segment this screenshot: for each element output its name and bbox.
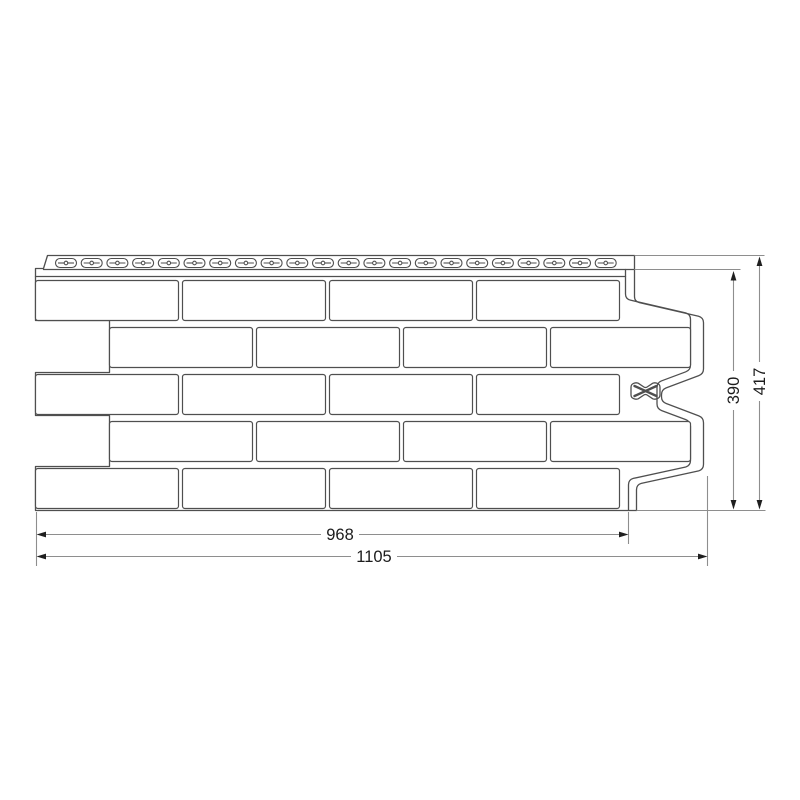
nail-hole (107, 259, 128, 268)
nail-hole (133, 259, 154, 268)
brick (183, 469, 326, 509)
nail-hole (81, 259, 102, 268)
brick (36, 281, 179, 321)
nail-hole (261, 259, 282, 268)
nail-hole (544, 259, 565, 268)
arrowhead (37, 532, 47, 538)
nail-hole (313, 259, 334, 268)
brick (36, 375, 179, 415)
brick (551, 328, 691, 368)
nail-hole (287, 259, 308, 268)
brick (330, 375, 473, 415)
brick (110, 328, 253, 368)
nail-hole (518, 259, 539, 268)
nail-hole (158, 259, 179, 268)
nail-hole (184, 259, 205, 268)
brick (477, 281, 620, 321)
brick (551, 422, 691, 462)
facade-panel-technical-drawing: 968 1105 390 417 (0, 0, 800, 800)
brick-pattern (36, 281, 691, 509)
arrowhead (731, 271, 737, 281)
dim-label-overall-height: 417 (751, 368, 769, 396)
brick (477, 375, 620, 415)
nail-hole (467, 259, 488, 268)
brick (257, 328, 400, 368)
dim-label-face-height: 390 (725, 377, 743, 405)
arrowhead (757, 257, 763, 267)
arrowhead (731, 500, 737, 510)
brick (477, 469, 620, 509)
nail-hole (364, 259, 385, 268)
brick (183, 375, 326, 415)
nail-hole (570, 259, 591, 268)
nail-hole (441, 259, 462, 268)
nail-hole (415, 259, 436, 268)
nail-hole (56, 259, 77, 268)
nail-hole (492, 259, 513, 268)
brick (257, 422, 400, 462)
brick (183, 281, 326, 321)
brick (330, 281, 473, 321)
brick (36, 469, 179, 509)
brick (404, 328, 547, 368)
arrowhead (619, 532, 629, 538)
bowtie-lock-mark (631, 383, 660, 399)
arrowhead (698, 554, 708, 560)
dim-label-overall-width: 1105 (356, 548, 391, 566)
nail-hole (390, 259, 411, 268)
brick (330, 469, 473, 509)
brick (110, 422, 253, 462)
arrowhead (37, 554, 47, 560)
drawing-canvas: 968 1105 390 417 (0, 0, 800, 800)
nail-hole (210, 259, 231, 268)
nail-hole (595, 259, 616, 268)
nail-hole (235, 259, 256, 268)
nail-strip-perforations (56, 259, 617, 268)
dim-label-face-width: 968 (326, 526, 354, 544)
nail-hole (338, 259, 359, 268)
brick (404, 422, 547, 462)
arrowhead (757, 500, 763, 510)
